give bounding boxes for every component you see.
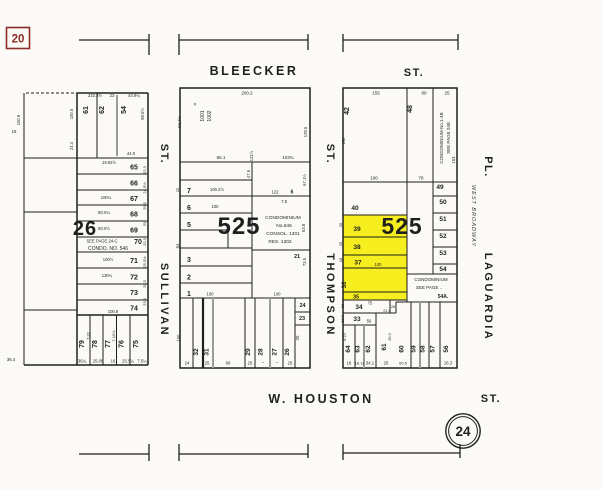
condo-lot-54a-line2: SEE PAGE .. [416,285,442,290]
lot-number: 54 [121,106,128,114]
street-bleecker-suffix: ST. [404,67,424,79]
lot-number: 76 [119,340,126,348]
lot-number: 29 [245,348,252,356]
condo-lot-54a-line1: CONDOMINIUM [414,277,447,282]
dimension-label: 100 [274,292,282,297]
dimension-label: 25 [444,91,450,96]
dimension-label: 64 [175,243,180,248]
lot-number: 59 [411,345,418,353]
street-sullivan-suffix: ST. [158,144,170,164]
dimension-label: 24.5½ [142,182,147,194]
lot-number: 74 [130,306,138,313]
dimension-label: 23 [110,93,115,98]
lot-number: 50 [439,199,447,206]
dimension-label: 25 [384,361,389,366]
dimension-label: 25 [338,222,343,227]
dimension-label: 75 [368,301,373,306]
dimension-label: 100.2½ [210,187,224,192]
lot-number: 40 [351,205,359,212]
dimension-label: 25 [295,335,300,341]
dimension-label: 25 [338,241,343,246]
tax-map-page: 26 SEE PAGE 24-C CONDO. NO. 546 210.3½23… [0,0,603,489]
dimension-label: 129.5 [303,126,308,137]
lot-number: 31 [204,348,211,356]
dimension-label: 24 [185,361,190,366]
dimension-label: 100 [207,292,215,297]
block-number-525-middle: 525 [217,213,260,240]
lot-number: 2 [187,275,191,282]
dimension-label: 25.5 [142,279,147,288]
dimension-label: 25 [248,361,253,366]
block-number-525-right: 525 [381,213,422,239]
lot-number: 32 [193,348,200,356]
dimension-label: 18 [347,361,352,366]
dimension-label: 60.5 [399,361,408,366]
dimension-label: 210.3½ [88,93,102,98]
dimension-label: " [276,361,278,366]
dimension-label: 7.8 [281,199,287,204]
dimension-label: × [194,102,197,108]
dimension-label: 80 [421,91,427,96]
adjacent-page-number: 20 [12,34,25,46]
lot-number: 24 [299,303,306,309]
dimension-label: 26 [391,305,395,309]
dimension-label: 100.5 [69,108,74,119]
dimension-label: 21.9 [383,309,390,313]
lot-number: 49 [436,184,444,191]
lot-number: 34 [355,304,363,311]
lot-number: 21 [294,254,300,260]
street-sullivan: SULLIVAN [158,263,170,337]
dimension-label: 103¾ [282,155,294,160]
lot-number: 70 [134,239,142,246]
dimension-label: 100¼ [101,195,112,200]
lot-number: 33 [353,316,361,323]
lot-number: 7 [187,188,191,195]
dimension-label: 130¼ [102,273,113,278]
lot-number: 27 [272,348,279,356]
condo-strip-line2: SEE PAGE 24B [446,122,451,154]
dimension-label: 7.5¼ [137,359,147,364]
dimension-label: 18.11 [355,361,365,366]
lot-number: 79 [79,340,86,348]
lot-number: 60 [399,345,406,353]
dimension-label: 36¼ [78,359,87,364]
lot-number: 68 [130,212,138,219]
condo-note-546: SEE PAGE 24-C [86,239,117,244]
sheet-number: 24 [455,424,471,439]
dimension-label: 25.5½ [142,256,147,268]
lot-number: 23 [299,316,305,322]
street-laguardia: LAGUARDIA [482,253,494,342]
dimension-label: 92.4½ [177,116,182,128]
dimension-label: 23.3 [142,297,147,306]
dimension-label: 192 [341,137,346,145]
street-thompson: THOMPSON [324,253,336,337]
lot-number: 57 [430,345,437,353]
lot-number: 3 [187,257,191,264]
dimension-label: 19 [12,129,17,134]
condo-646-line2: No.646 [276,223,292,229]
lot-number: 66 [130,181,138,188]
dimension-label: 78 [418,176,424,181]
condo-strip-line1: CONDOMINIUM-No.1-4B [439,112,444,163]
street-laguardia-suffix: PL. [482,156,494,178]
block-right: 525 CONDOMINIUM-No.1-4B SEE PAGE 24B CON… [338,88,457,368]
lot-number: 63 [355,345,362,353]
dimension-label: 63.8 [301,223,306,232]
lot-number: 6 [187,205,191,212]
dimension-label: 73.5 [302,257,307,266]
condo-646-line4: RES. 1302 [268,239,292,245]
lot-number: 64 [345,345,352,353]
lot-number: 35 [353,295,359,301]
lot-number: 52 [439,233,447,240]
condo-646-line1: CONDOMINIUM [265,215,300,221]
lot-number: 75 [133,340,140,348]
street-bleecker: BLEECKER [210,64,299,78]
condo-lot-54a-line3: 54A. [438,294,449,300]
dimension-label: 100.9 [16,114,21,125]
dimension-label: 60 [226,361,231,366]
dimension-label: 7.19¾ [111,330,116,342]
dimension-label: 36.4 [7,357,16,362]
dimension-label: 200.2 [241,91,253,96]
dimension-label: 25 [175,187,180,192]
lot-number: 54 [439,266,447,273]
dimension-label: 44.0 [127,151,136,156]
dimension-label: 80.0¼ [98,210,110,215]
dimension-label: 163 [451,156,456,164]
dimension-label: 100 [375,262,383,267]
lot-number: 73 [130,290,138,297]
dimension-label: 25.5 [142,201,147,210]
street-houston: W. HOUSTON [268,392,373,406]
lot-number: 1 [187,291,191,298]
dimension-label: 25.08 [93,359,104,364]
dimension-label: 6.10 [343,333,347,340]
lot-number: 39 [353,226,361,233]
dimension-label: 44.9¼ [128,93,140,98]
lot-number: 56 [443,345,450,353]
dimension-label: 25 [288,361,293,366]
dimension-label: 65.1 [217,155,226,160]
dimension-label: 155 [372,91,380,96]
dimension-label: 23 [142,221,147,226]
lot-number: 53 [439,250,447,257]
street-houston-suffix: ST. [481,393,501,405]
condo-name-546: CONDO. NO. 546 [88,246,128,252]
dimension-label: 24.4 [69,141,74,150]
lot-number: 26 [284,348,291,356]
block-left: 26 SEE PAGE 24-C CONDO. NO. 546 210.3½23… [7,93,148,365]
dimension-label: 1002 [207,110,213,121]
lot-number: 62 [99,106,106,114]
dimension-label: 100 [212,204,220,209]
dimension-label: 100.8 [108,309,119,314]
dimension-label: 100 [176,334,181,342]
dimension-label: 18.3 [340,314,345,323]
dimension-label: 22.3 [142,237,147,246]
dimension-label: 18 [338,257,343,262]
dimension-label: 100½ [103,257,114,262]
lot-number: 36 [342,281,348,288]
dimension-label: 22.3 [142,165,147,174]
lot-number: 78 [92,340,99,348]
lot-number: 51 [439,216,447,223]
lot-number: 62 [365,345,372,353]
dimension-label: 122 [272,190,280,195]
street-thompson-suffix: ST. [324,144,336,164]
lot-number: 67 [130,196,138,203]
dimension-label: 16.3 [444,361,453,366]
lot-number: 48 [407,105,414,113]
lot-number: 61 [83,106,90,114]
dimension-label: 7.22 [86,331,91,340]
dimension-label: 1001 [200,110,206,121]
dimension-label: 98.0½ [140,108,145,120]
dimension-label: 121½ [249,150,254,161]
dimension-label: 47.6 [246,169,251,178]
condo-646-line3: CONSOL. 1301 [266,231,300,237]
lot-number: 5 [187,222,191,229]
lot-number: 42 [344,107,351,115]
dimension-label: 34.1 [366,361,375,366]
dimension-label: 25 [205,361,210,366]
lot-number: 61 [381,343,388,351]
lot-number: 65 [130,165,138,172]
dimension-label: 45.0 [388,333,392,340]
block-middle: 525 CONDOMINIUM No.646 CONSOL. 1301 RES.… [175,88,310,368]
block-number-526: 26 [73,218,97,240]
lot-number: 28 [258,348,265,356]
dimension-label: " [262,361,264,366]
dimension-label: 25.5¼ [122,359,134,364]
lot-number: 6 [291,190,294,196]
tax-map-sheet: 26 SEE PAGE 24-C CONDO. NO. 546 210.3½23… [0,0,603,489]
lot-number: 69 [130,228,138,235]
lot-number: 37 [354,260,362,267]
dimension-label: 19.92½ [102,160,116,165]
dimension-label: 100 [370,176,378,181]
dimension-label: 18 [340,303,345,308]
street-west-broadway-former: WEST BROADWAY [470,185,476,247]
dimension-label: 56 [367,319,372,324]
lot-number: 38 [353,244,361,251]
lot-number: 58 [420,345,427,353]
dimension-label: 16 [111,359,116,364]
dimension-label: 80.0½ [98,226,110,231]
dimension-label: 67.1½ [302,174,307,186]
lot-number: 72 [130,275,138,282]
lot-number: 71 [130,258,138,265]
